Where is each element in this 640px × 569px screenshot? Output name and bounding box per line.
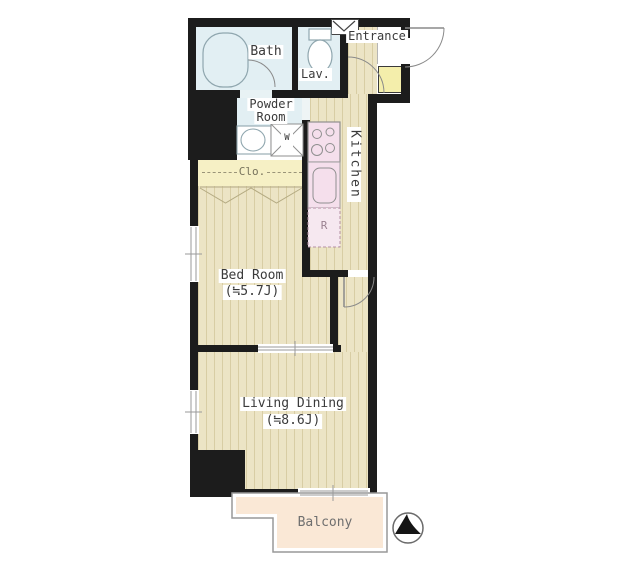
- closet-label: Clo.: [237, 166, 268, 178]
- refrigerator-label: R: [321, 220, 328, 232]
- wall: [188, 18, 410, 27]
- wall: [302, 120, 310, 270]
- wall: [333, 345, 341, 352]
- living-dining-size: (≒8.6J): [264, 414, 323, 428]
- entrance-door-arc: [405, 28, 444, 67]
- bedroom-label: Bed Room (≒5.7J): [219, 269, 286, 300]
- bedroom-sliding-door: [258, 344, 333, 353]
- north-arrow-icon: [393, 513, 423, 543]
- wall: [302, 270, 348, 277]
- wall: [196, 90, 240, 98]
- wall: [368, 94, 410, 103]
- balcony-sliding-window: [298, 488, 370, 498]
- wall: [198, 345, 258, 352]
- washer-label: W: [284, 134, 289, 144]
- bedroom-size: (≒5.7J): [223, 285, 282, 299]
- bedroom-window: [188, 226, 199, 282]
- wall: [245, 489, 298, 497]
- wall: [190, 282, 198, 390]
- wall: [188, 27, 196, 98]
- entrance-label: Entrance: [346, 30, 408, 43]
- powder-room-label: Powder Room: [247, 98, 294, 124]
- closet-label-row: Clo.: [202, 166, 302, 178]
- balcony-label: Balcony: [298, 516, 353, 530]
- wall: [190, 160, 198, 226]
- closet-dash-line: [202, 172, 237, 173]
- living-dining-label: Living Dining (≒8.6J): [240, 397, 346, 429]
- wall: [292, 27, 298, 90]
- bedroom-floor: [198, 186, 302, 345]
- closet-dash-line: [267, 172, 302, 173]
- lavatory-label: Lav.: [299, 68, 332, 81]
- wall: [401, 64, 410, 94]
- wall: [188, 93, 237, 160]
- kitchen-label: Kitchen: [347, 127, 361, 202]
- floor-plan: Bath Lav. Entrance Powder Room Kitchen C…: [0, 0, 640, 569]
- wall: [190, 450, 245, 497]
- living-window: [188, 390, 199, 434]
- powder-room-opening: [302, 98, 310, 120]
- wall: [330, 277, 338, 352]
- shoe-cabinet: [378, 66, 402, 93]
- wall: [368, 103, 377, 497]
- bath-label: Bath: [248, 45, 283, 59]
